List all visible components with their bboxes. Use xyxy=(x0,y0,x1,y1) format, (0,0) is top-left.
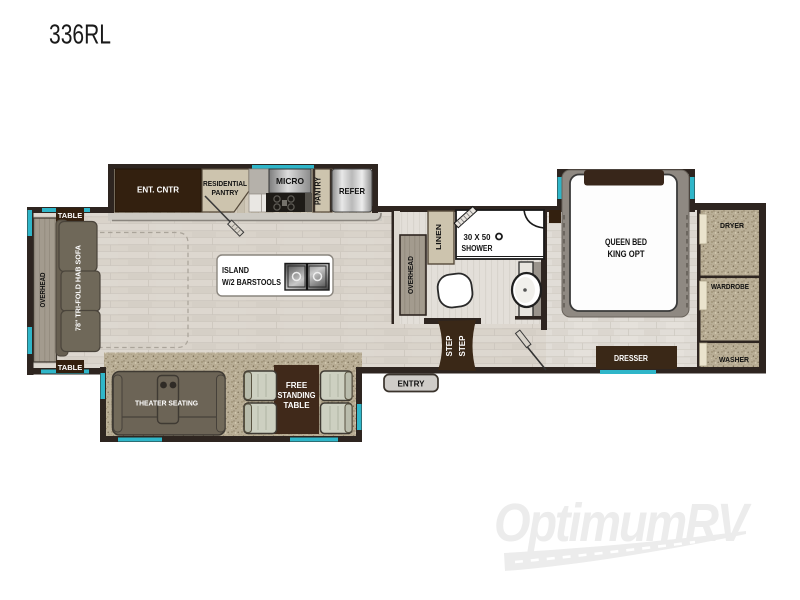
svg-text:TABLE: TABLE xyxy=(58,363,82,372)
svg-text:W/2 BARSTOOLS: W/2 BARSTOOLS xyxy=(222,277,281,287)
svg-text:TABLE: TABLE xyxy=(283,401,310,410)
svg-text:RESIDENTIAL: RESIDENTIAL xyxy=(203,179,247,188)
svg-text:OptimumRV: OptimumRV xyxy=(494,493,752,553)
svg-text:WARDROBE: WARDROBE xyxy=(711,282,749,291)
svg-text:ENT. CNTR: ENT. CNTR xyxy=(137,186,179,195)
svg-text:REFER: REFER xyxy=(339,186,365,196)
svg-text:THEATER SEATING: THEATER SEATING xyxy=(135,399,198,408)
svg-text:MICRO: MICRO xyxy=(276,176,304,186)
svg-text:78" TRI-FOLD HAB SOFA: 78" TRI-FOLD HAB SOFA xyxy=(74,244,83,331)
svg-text:PANTRY: PANTRY xyxy=(212,188,239,197)
svg-text:DRESSER: DRESSER xyxy=(614,354,648,363)
svg-text:KING OPT: KING OPT xyxy=(608,249,645,259)
svg-text:FREE: FREE xyxy=(286,381,308,390)
svg-text:STEP: STEP xyxy=(458,335,467,357)
svg-text:336RL: 336RL xyxy=(49,19,111,50)
svg-text:OVERHEAD: OVERHEAD xyxy=(406,255,415,294)
svg-text:DRYER: DRYER xyxy=(720,221,745,230)
svg-text:ENTRY: ENTRY xyxy=(398,379,425,389)
svg-text:WASHER: WASHER xyxy=(719,355,750,364)
svg-text:QUEEN BED: QUEEN BED xyxy=(605,237,647,247)
svg-text:PANTRY: PANTRY xyxy=(314,176,323,205)
svg-text:LINEN: LINEN xyxy=(434,224,443,250)
svg-text:STEP: STEP xyxy=(445,335,454,357)
svg-text:OVERHEAD: OVERHEAD xyxy=(38,272,47,307)
svg-text:ISLAND: ISLAND xyxy=(222,265,249,275)
svg-text:30 X 50: 30 X 50 xyxy=(464,233,492,242)
svg-text:SHOWER: SHOWER xyxy=(462,244,493,253)
svg-text:TABLE: TABLE xyxy=(58,211,82,220)
svg-text:STANDING: STANDING xyxy=(278,391,316,400)
